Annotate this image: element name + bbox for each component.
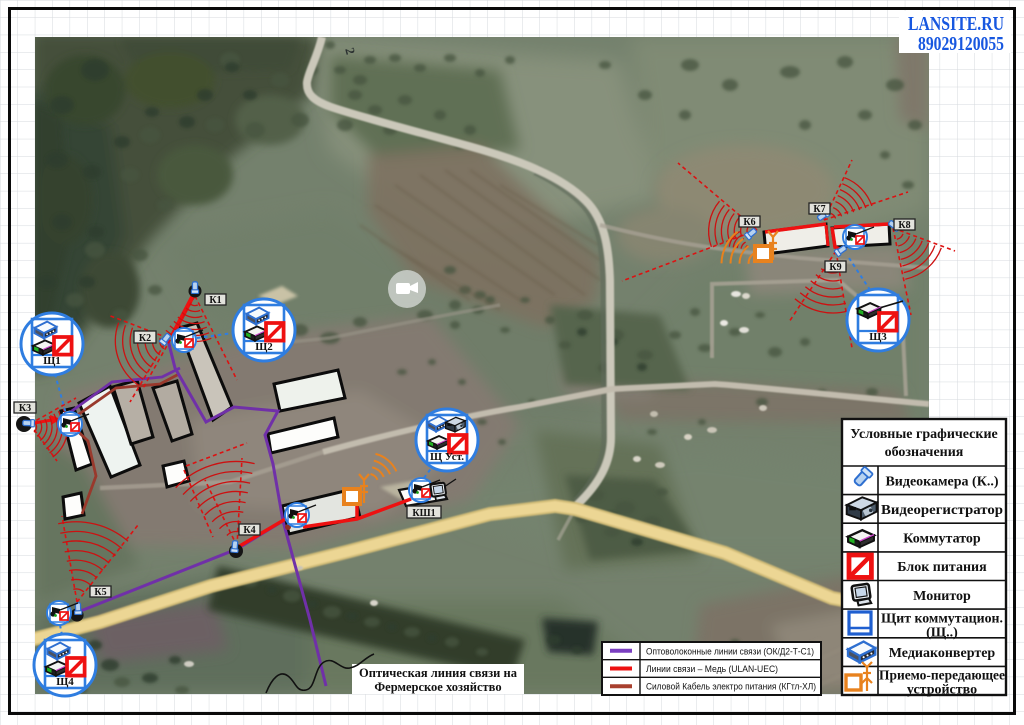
svg-text:К3: К3	[19, 403, 31, 414]
svg-text:К5: К5	[94, 587, 106, 598]
svg-text:обозначения: обозначения	[885, 445, 964, 460]
svg-text:Силовой Кабель электро питания: Силовой Кабель электро питания (КГтл-ХЛ)	[646, 682, 816, 693]
svg-text:Блок питания: Блок питания	[897, 560, 987, 575]
svg-text:Щ Уст.: Щ Уст.	[430, 451, 464, 463]
svg-text:К4: К4	[243, 525, 255, 536]
svg-text:К1: К1	[209, 295, 221, 306]
svg-text:К8: К8	[898, 220, 910, 231]
svg-text:LANSITE.RU: LANSITE.RU	[908, 13, 1004, 35]
svg-text:Условные графические: Условные графические	[850, 427, 998, 442]
svg-text:Щ3: Щ3	[869, 331, 887, 343]
svg-text:К7: К7	[813, 204, 825, 215]
svg-text:Медиаконвертер: Медиаконвертер	[889, 646, 996, 661]
svg-text:Видеокамера (К..): Видеокамера (К..)	[885, 474, 998, 489]
svg-text:КШ1: КШ1	[412, 508, 435, 519]
svg-text:устройство: устройство	[907, 683, 977, 698]
svg-text:Видеорегистратор: Видеорегистратор	[881, 503, 1003, 518]
svg-text:Фермерское хозяйство: Фермерское хозяйство	[374, 680, 501, 694]
svg-text:Монитор: Монитор	[913, 589, 971, 604]
svg-text:К9: К9	[829, 262, 841, 273]
svg-text:89029120055: 89029120055	[918, 33, 1004, 55]
svg-text:Коммутатор: Коммутатор	[903, 532, 981, 547]
svg-text:Оптоволоконные линии связи (ОК: Оптоволоконные линии связи (ОК/Д2-Т-С1)	[646, 646, 814, 657]
svg-text:Щ4: Щ4	[56, 676, 74, 688]
svg-text:Оптическая линия связи на: Оптическая линия связи на	[359, 666, 518, 680]
svg-text:К6: К6	[743, 217, 755, 228]
svg-text:Щит коммутацион.: Щит коммутацион.	[881, 611, 1003, 626]
svg-text:Щ2: Щ2	[255, 341, 273, 353]
svg-text:К2: К2	[139, 333, 151, 344]
svg-text:Приемо-передающее: Приемо-передающее	[879, 669, 1005, 684]
svg-text:Линии связи – Медь (ULAN-UEC): Линии связи – Медь (ULAN-UEC)	[646, 664, 778, 675]
svg-text:(Щ..): (Щ..)	[926, 625, 958, 640]
svg-text:Щ1: Щ1	[43, 355, 61, 367]
